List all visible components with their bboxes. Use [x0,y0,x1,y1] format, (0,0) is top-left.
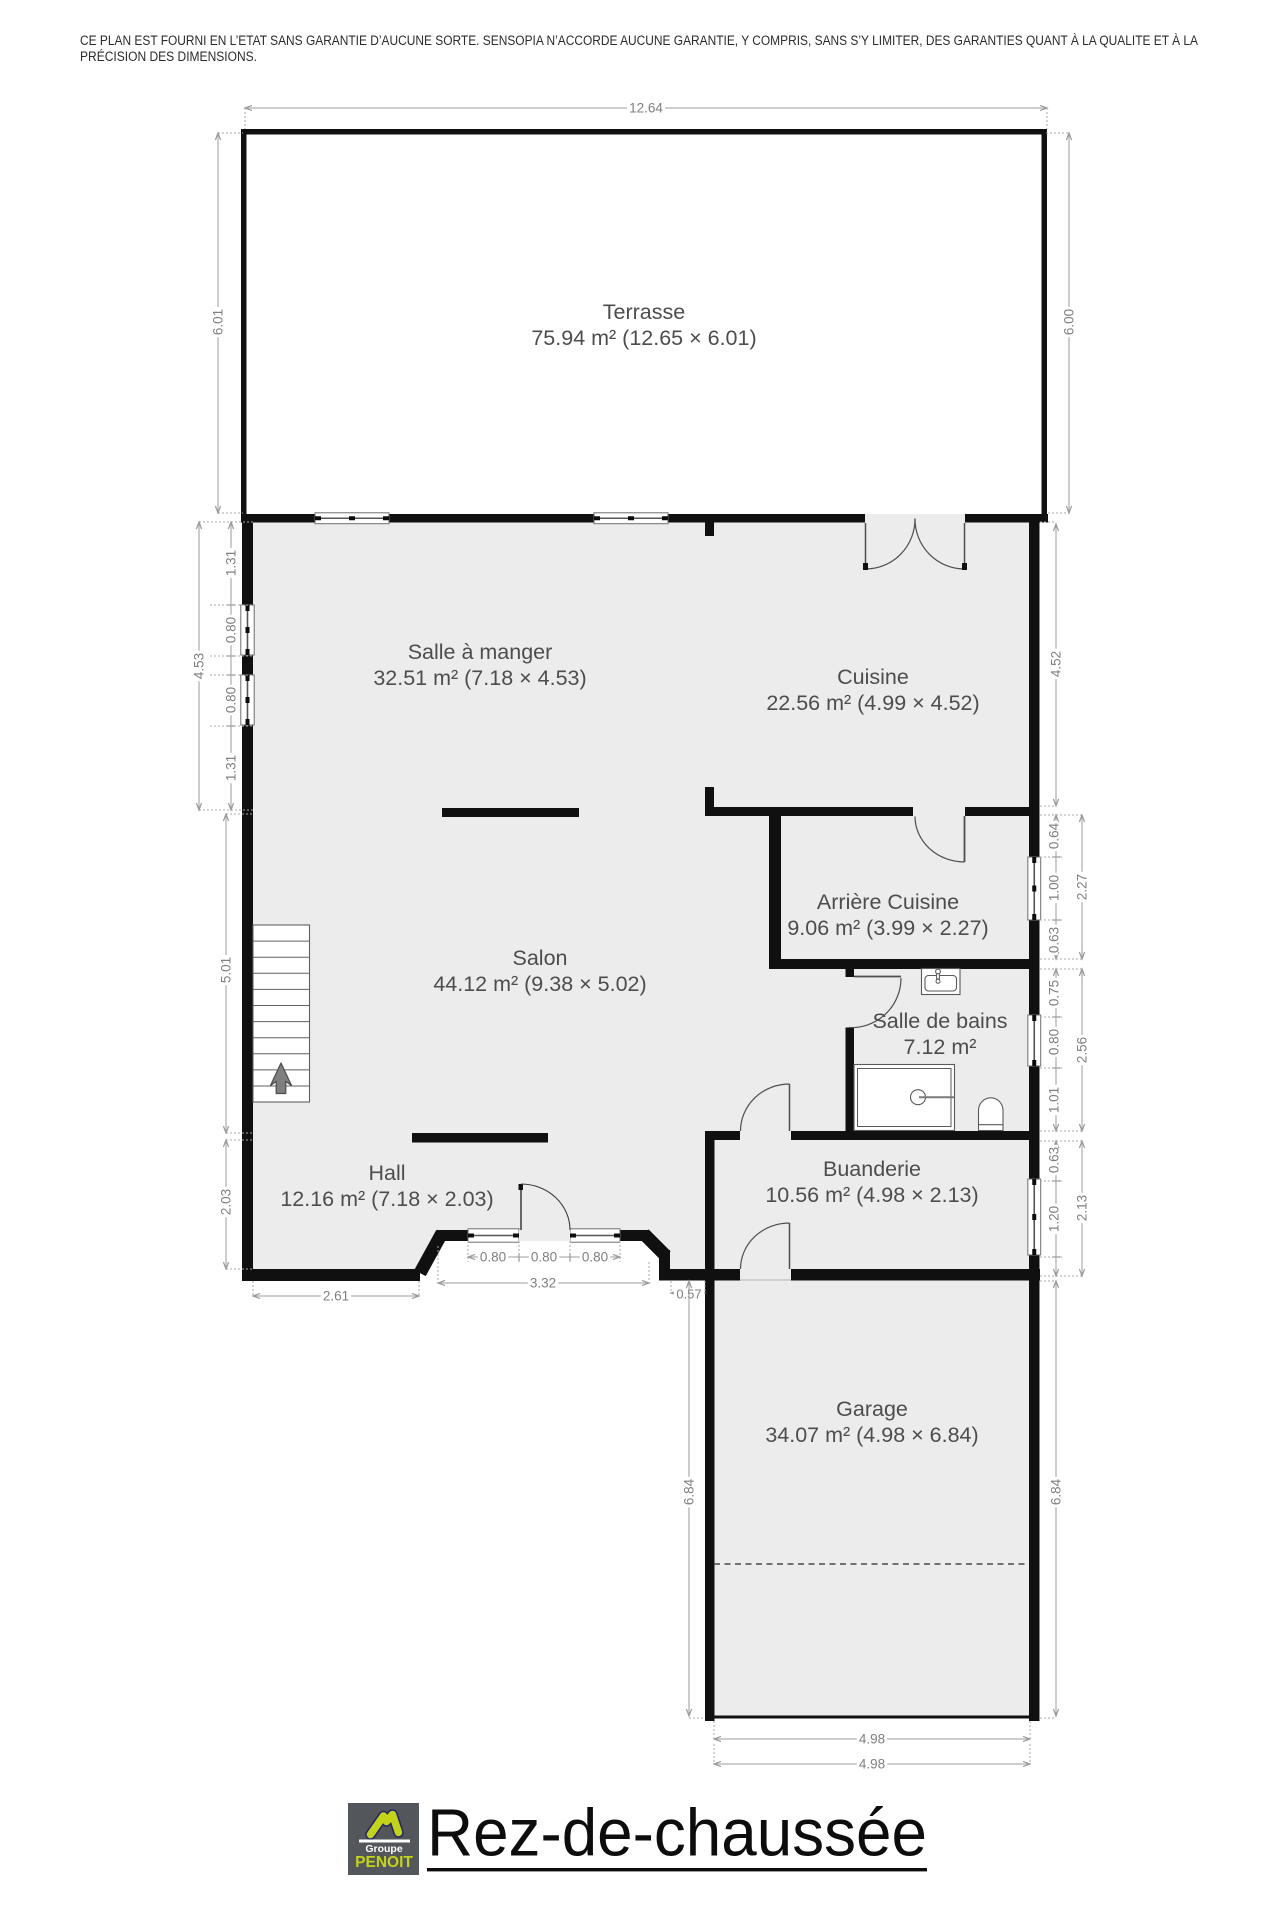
svg-text:4.98: 4.98 [859,1732,885,1747]
svg-text:3.32: 3.32 [530,1276,556,1291]
svg-text:1.00: 1.00 [1047,875,1062,901]
svg-text:1.31: 1.31 [224,755,239,781]
svg-text:2.13: 2.13 [1075,1195,1090,1221]
svg-text:22.56 m² (4.99 × 4.52): 22.56 m² (4.99 × 4.52) [766,691,979,715]
svg-text:2.27: 2.27 [1075,874,1090,900]
svg-text:6.01: 6.01 [211,309,226,335]
svg-text:6.84: 6.84 [682,1478,697,1505]
svg-text:Terrasse: Terrasse [603,300,685,324]
svg-text:10.56 m² (4.98 × 2.13): 10.56 m² (4.98 × 2.13) [765,1183,978,1207]
svg-text:0.80: 0.80 [1047,1029,1062,1055]
svg-text:Salon: Salon [513,946,568,970]
svg-text:9.06 m² (3.99 × 2.27): 9.06 m² (3.99 × 2.27) [787,916,988,940]
svg-text:PENOIT: PENOIT [355,1854,413,1871]
svg-text:6.84: 6.84 [1049,1478,1064,1505]
svg-text:0.63: 0.63 [1047,1147,1062,1173]
svg-text:0.64: 0.64 [1047,822,1062,849]
svg-text:1.01: 1.01 [1047,1087,1062,1113]
svg-text:4.53: 4.53 [192,653,207,679]
svg-text:2.03: 2.03 [219,1189,234,1215]
svg-text:75.94 m² (12.65 × 6.01): 75.94 m² (12.65 × 6.01) [531,326,756,350]
svg-text:6.00: 6.00 [1062,309,1077,335]
svg-text:Cuisine: Cuisine [837,665,909,689]
svg-text:0.80: 0.80 [582,1250,608,1265]
svg-text:0.80: 0.80 [531,1250,557,1265]
svg-text:2.56: 2.56 [1075,1037,1090,1063]
svg-text:Rez-de-chaussée: Rez-de-chaussée [427,1796,927,1871]
svg-text:Salle de bains: Salle de bains [872,1009,1007,1033]
svg-text:Buanderie: Buanderie [823,1157,921,1181]
svg-text:0.63: 0.63 [1047,927,1062,953]
svg-text:PRÉCISION DES DIMENSIONS.: PRÉCISION DES DIMENSIONS. [80,49,257,64]
svg-text:7.12 m²: 7.12 m² [904,1035,977,1059]
svg-text:12.64: 12.64 [629,101,663,116]
svg-text:Hall: Hall [368,1161,405,1185]
svg-text:0.75: 0.75 [1047,980,1062,1006]
svg-text:0.80: 0.80 [224,617,239,643]
svg-text:0.80: 0.80 [480,1250,506,1265]
svg-text:32.51 m² (7.18 × 4.53): 32.51 m² (7.18 × 4.53) [373,666,586,690]
svg-text:44.12 m² (9.38 × 5.02): 44.12 m² (9.38 × 5.02) [433,972,646,996]
svg-text:5.01: 5.01 [219,957,234,983]
svg-text:4.98: 4.98 [859,1757,885,1772]
svg-text:4.52: 4.52 [1049,651,1064,677]
svg-text:1.31: 1.31 [224,550,239,576]
svg-text:34.07 m² (4.98 × 6.84): 34.07 m² (4.98 × 6.84) [765,1423,978,1447]
svg-text:CE PLAN EST FOURNI EN L’ETAT S: CE PLAN EST FOURNI EN L’ETAT SANS GARANT… [80,33,1198,48]
svg-text:2.61: 2.61 [323,1289,349,1304]
svg-text:0.80: 0.80 [224,687,239,713]
svg-text:Garage: Garage [836,1397,908,1421]
svg-text:Salle à manger: Salle à manger [408,640,553,664]
svg-text:1.20: 1.20 [1047,1206,1062,1232]
svg-text:Arrière Cuisine: Arrière Cuisine [817,890,959,914]
svg-text:12.16 m² (7.18 × 2.03): 12.16 m² (7.18 × 2.03) [280,1187,493,1211]
